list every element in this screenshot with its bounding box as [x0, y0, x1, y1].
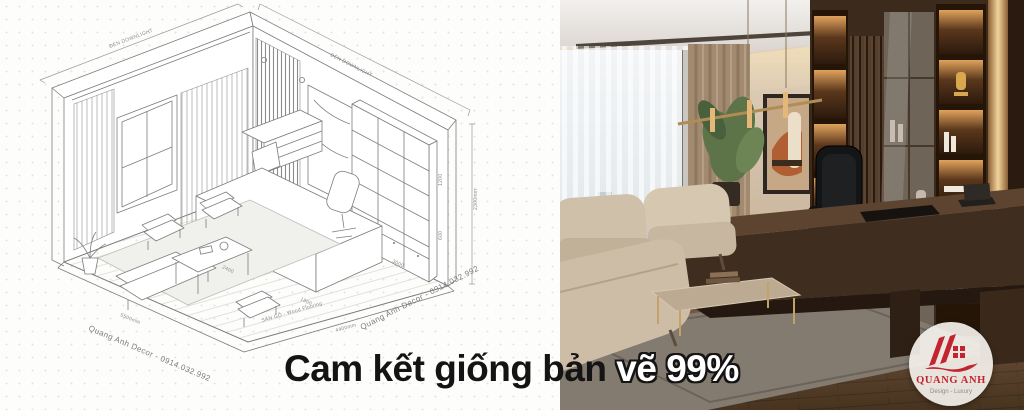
roof-icon: [929, 334, 965, 366]
brand-logo: QUANG ANH Design - Luxury: [909, 322, 993, 406]
brand-bottom-left: Quang Anh Decor - 0914.032.992: [87, 324, 212, 384]
dim-bottom-left: 5500mm: [119, 312, 141, 326]
dim-right-height: 2300mm: [473, 189, 479, 210]
caption-dark-text: Cam kết giống bản: [284, 348, 616, 389]
dim-bottom-right: 4400mm: [335, 322, 357, 334]
promo-image: Quang Anh Decor - 0914.032.992: [0, 0, 1024, 410]
label-downlight-left: ĐÈN DOWNLIGHT: [108, 27, 154, 50]
brand-tagline: Design - Luxury: [930, 389, 972, 395]
brand-name: QUANG ANH: [916, 375, 986, 386]
dim-chair-zone: 1200: [438, 174, 444, 186]
dim-cabinet-depth: 600: [438, 231, 444, 240]
brand-logo-art: QUANG ANH Design - Luxury: [909, 322, 993, 406]
caption: Cam kết giống bản vẽ 99%: [284, 348, 739, 390]
caption-outlined-text: vẽ 99%: [616, 348, 739, 389]
